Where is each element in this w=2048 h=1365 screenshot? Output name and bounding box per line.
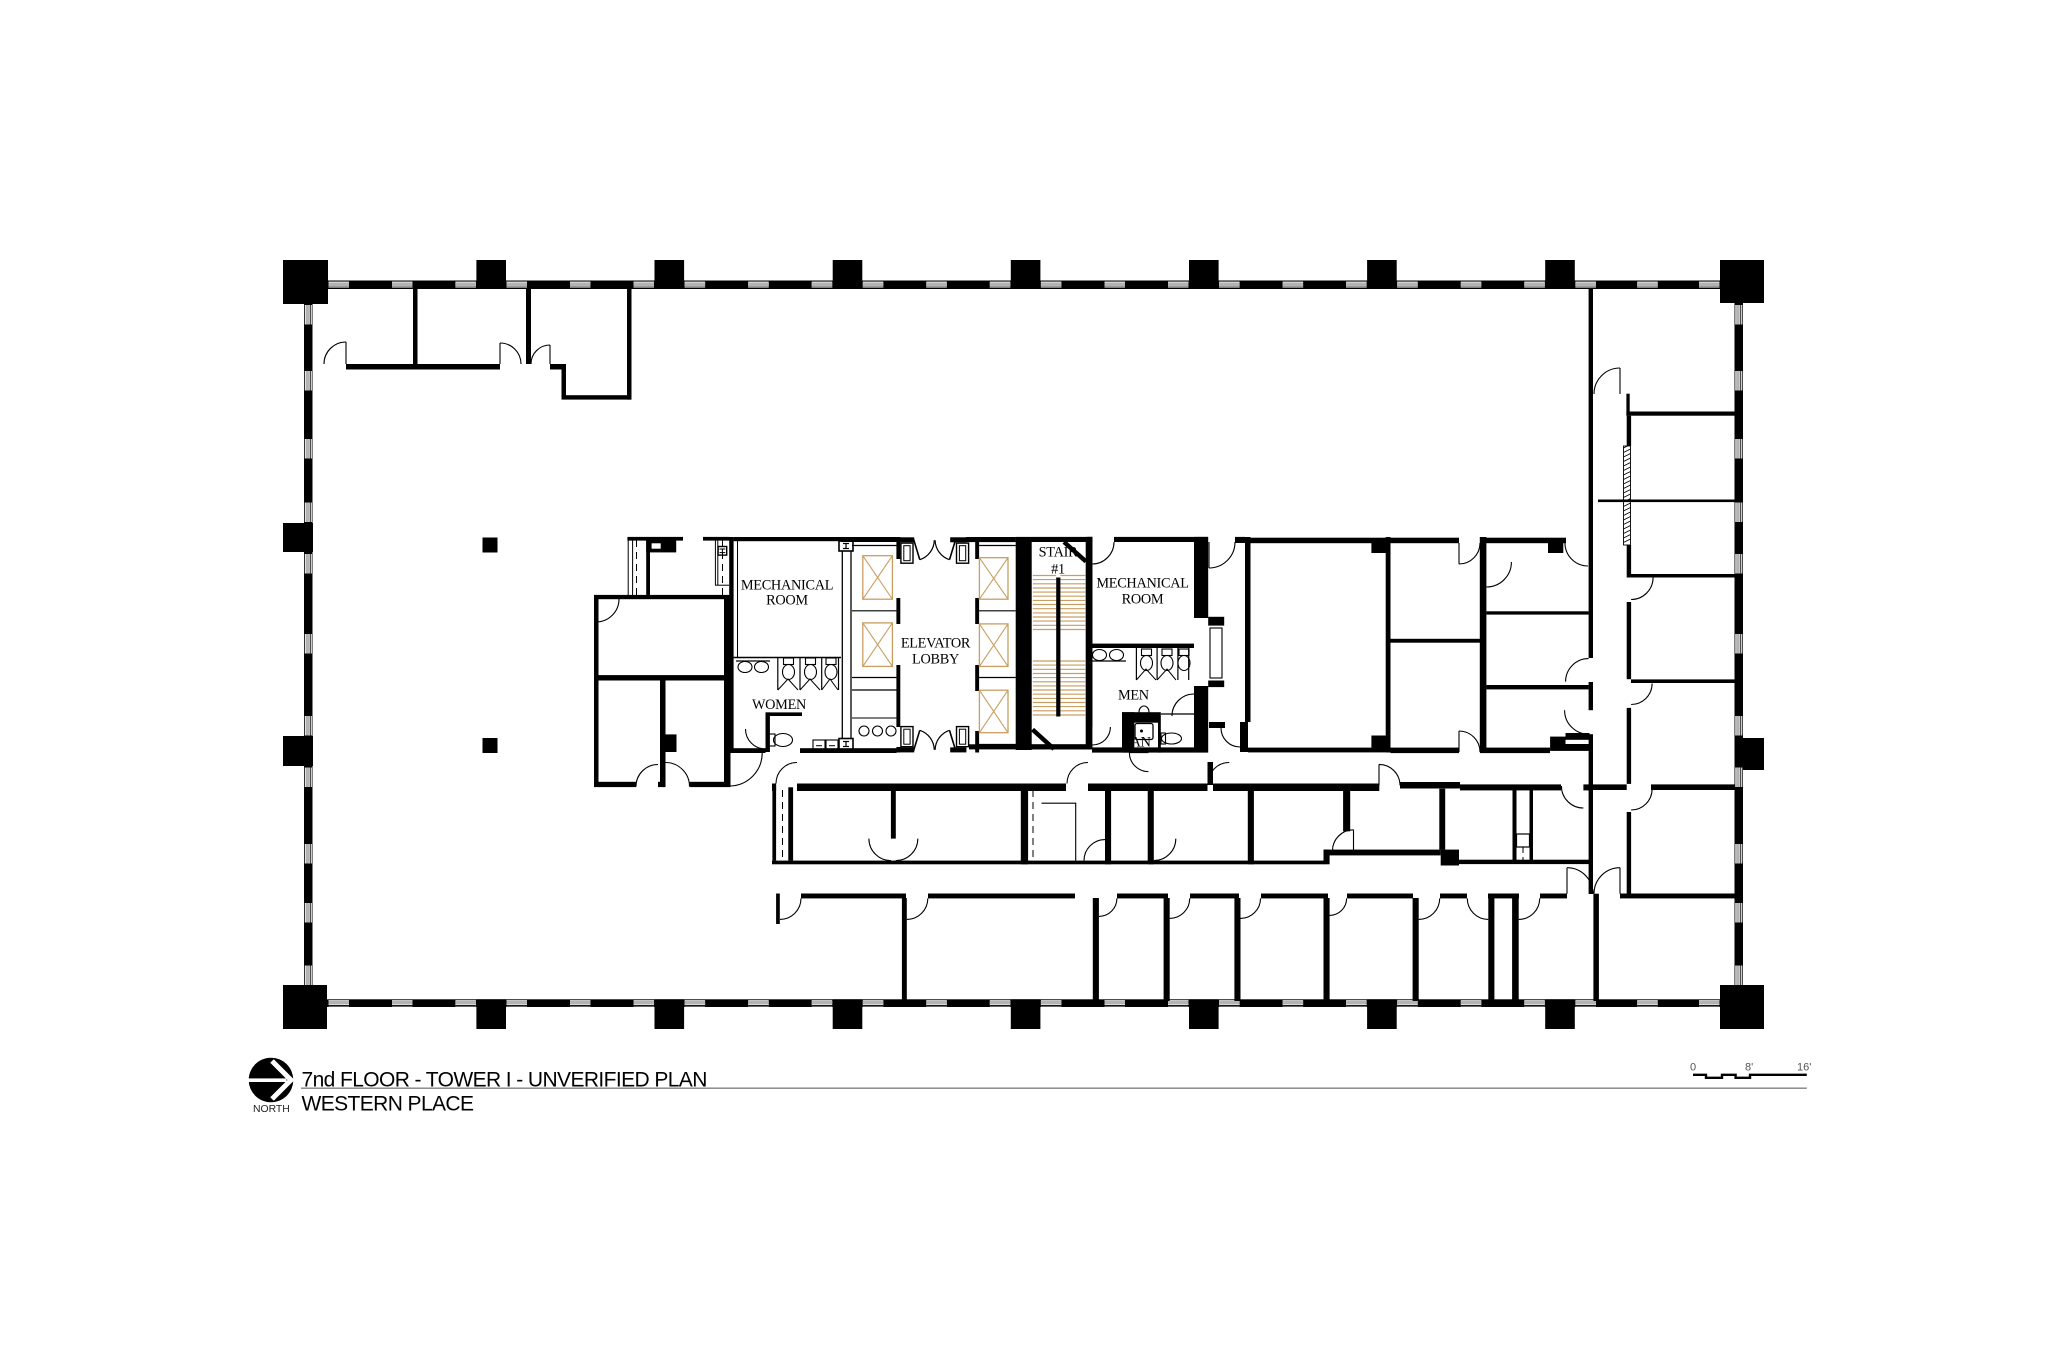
svg-text:MEN: MEN [1118,688,1149,704]
svg-text:WESTERN PLACE: WESTERN PLACE [302,1093,474,1116]
svg-text:MECHANICAL: MECHANICAL [1096,576,1188,592]
svg-text:16': 16' [1797,1062,1811,1074]
svg-text:ELEVATOR: ELEVATOR [901,636,971,652]
svg-text:ROOM: ROOM [766,593,808,609]
svg-text:ROOM: ROOM [1122,592,1164,608]
svg-text:8': 8' [1745,1062,1753,1074]
svg-text:WOMEN: WOMEN [752,697,806,713]
svg-text:NORTH: NORTH [253,1104,290,1115]
svg-text:MECHANICAL: MECHANICAL [741,577,833,593]
svg-text:0: 0 [1690,1062,1696,1074]
svg-text:LOBBY: LOBBY [912,652,959,668]
svg-text:#1: #1 [1051,562,1065,578]
svg-text:STAIR: STAIR [1039,544,1078,560]
